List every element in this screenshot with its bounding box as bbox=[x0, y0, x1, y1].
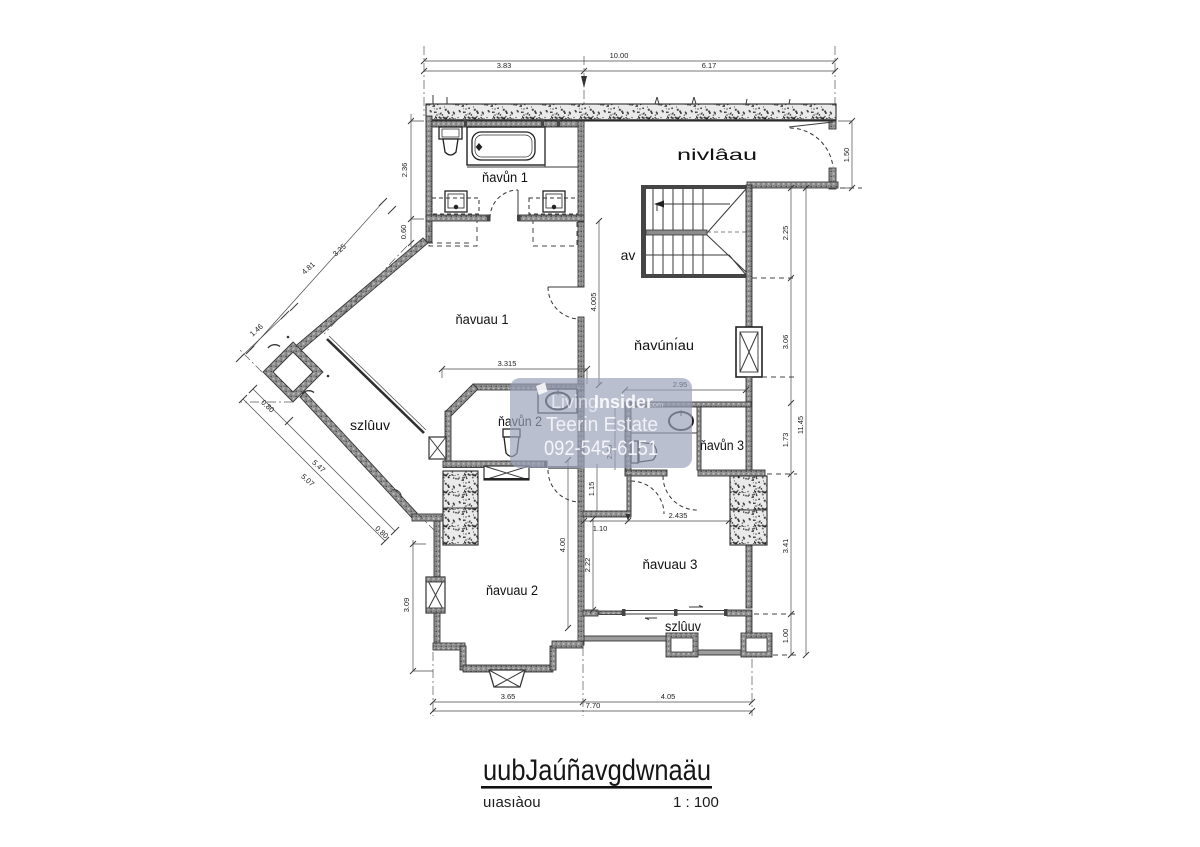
svg-text:1.00: 1.00 bbox=[781, 629, 790, 644]
svg-text:nivlâau: nivlâau bbox=[677, 147, 757, 164]
svg-text:2.22: 2.22 bbox=[583, 558, 592, 573]
svg-text:ňavúnı́au: ňavúnı́au bbox=[634, 338, 694, 353]
svg-text:7.70: 7.70 bbox=[586, 701, 601, 710]
svg-text:5.07: 5.07 bbox=[299, 472, 316, 488]
svg-text:092-545-6151: 092-545-6151 bbox=[544, 437, 658, 460]
svg-text:11.45: 11.45 bbox=[796, 416, 805, 434]
svg-text:1.50: 1.50 bbox=[842, 148, 851, 163]
svg-text:Teerin Estate: Teerin Estate bbox=[546, 414, 658, 436]
svg-text:1.15: 1.15 bbox=[587, 482, 596, 497]
svg-text:szlûuv: szlûuv bbox=[350, 418, 390, 433]
svg-text:3.06: 3.06 bbox=[781, 335, 790, 350]
svg-text:1.10: 1.10 bbox=[593, 524, 608, 533]
svg-text:2.25: 2.25 bbox=[781, 226, 790, 241]
svg-text:3.315: 3.315 bbox=[498, 359, 517, 368]
svg-text:uubJaúñavgdwnaäu: uubJaúñavgdwnaäu bbox=[483, 754, 711, 787]
svg-text:3.09: 3.09 bbox=[402, 598, 411, 613]
svg-text:av: av bbox=[621, 247, 636, 263]
svg-text:4.005: 4.005 bbox=[589, 293, 598, 312]
svg-text:ňavuau 1: ňavuau 1 bbox=[456, 312, 509, 327]
svg-text:4.81: 4.81 bbox=[300, 260, 317, 276]
svg-text:szlûuv: szlûuv bbox=[665, 619, 701, 634]
svg-text:uıasıàou: uıasıàou bbox=[483, 794, 541, 811]
svg-text:0.80: 0.80 bbox=[259, 398, 276, 414]
svg-text:.com: .com bbox=[647, 400, 663, 409]
svg-text:3.65: 3.65 bbox=[501, 692, 516, 701]
svg-text:3.83: 3.83 bbox=[497, 61, 512, 70]
svg-text:10.00: 10.00 bbox=[610, 51, 629, 60]
svg-text:3.41: 3.41 bbox=[781, 539, 790, 554]
svg-text:2.36: 2.36 bbox=[400, 163, 409, 178]
svg-text:1 : 100: 1 : 100 bbox=[673, 794, 719, 811]
svg-text:Insider: Insider bbox=[594, 392, 653, 412]
svg-text:Living: Living bbox=[551, 392, 598, 412]
svg-text:ňavuau 2: ňavuau 2 bbox=[486, 583, 538, 598]
svg-text:2.435: 2.435 bbox=[669, 511, 688, 520]
svg-text:ňavůn 1: ňavůn 1 bbox=[482, 170, 528, 185]
svg-text:ňavuau 3: ňavuau 3 bbox=[643, 557, 698, 572]
svg-text:0.60: 0.60 bbox=[399, 225, 408, 240]
svg-text:ňavůn 3: ňavůn 3 bbox=[700, 438, 744, 453]
svg-text:4.05: 4.05 bbox=[661, 692, 676, 701]
svg-text:4.00: 4.00 bbox=[558, 538, 567, 553]
svg-text:6.17: 6.17 bbox=[702, 61, 717, 70]
svg-text:1.73: 1.73 bbox=[781, 433, 790, 448]
